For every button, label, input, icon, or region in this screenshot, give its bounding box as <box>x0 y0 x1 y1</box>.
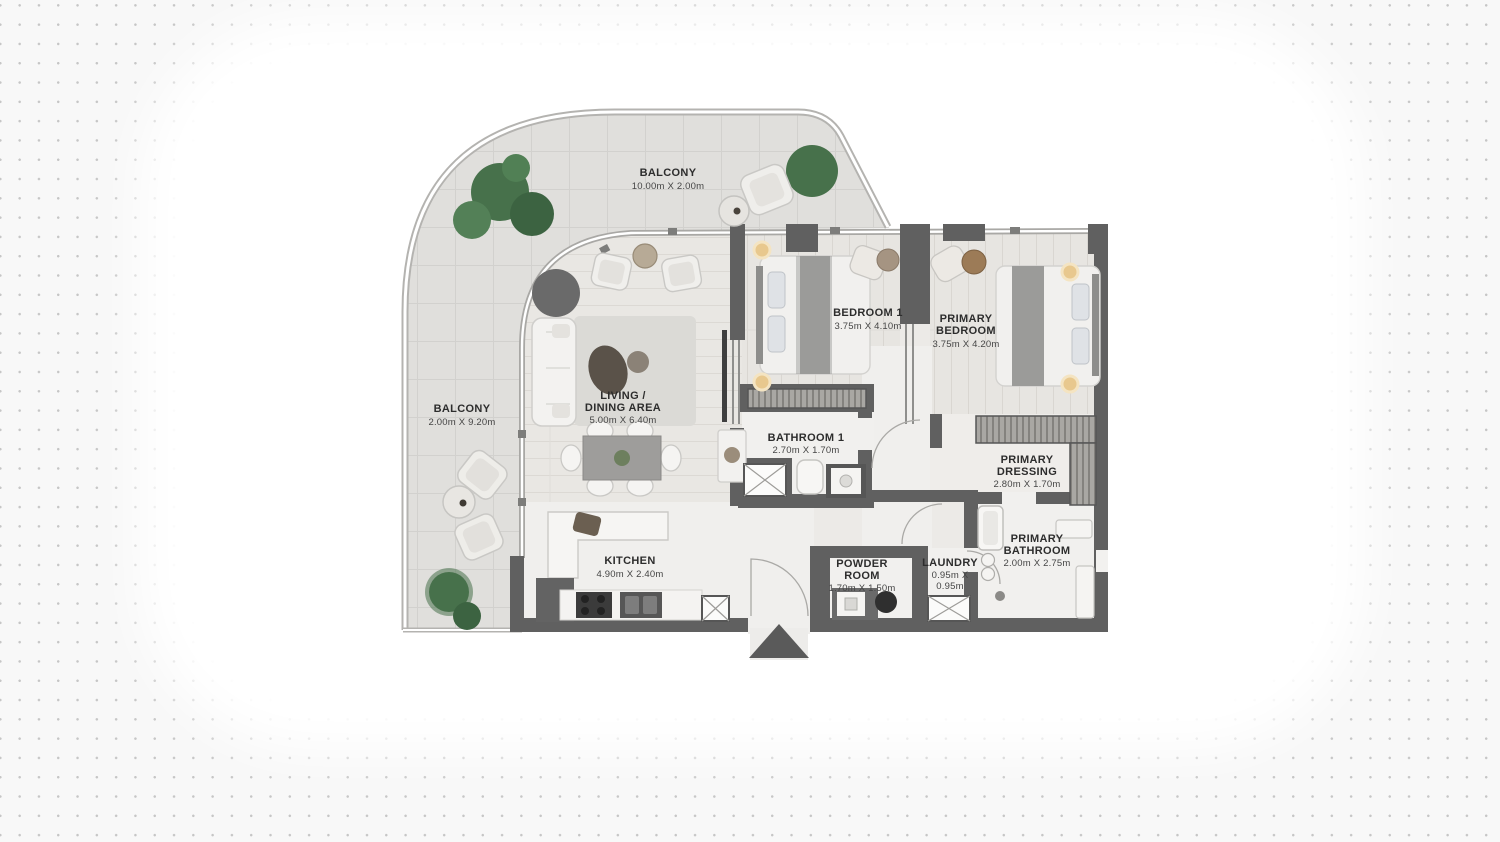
svg-text:4.90m X 2.40m: 4.90m X 2.40m <box>596 569 663 580</box>
svg-text:PRIMARY: PRIMARY <box>1011 533 1064 545</box>
drain <box>995 591 1005 601</box>
kitchen-sink <box>620 592 662 618</box>
table-decor <box>734 208 741 215</box>
tv <box>722 330 727 422</box>
wall-bedroom1-left <box>730 224 745 340</box>
pillow <box>768 316 785 352</box>
svg-text:1.70m X 1.50m: 1.70m X 1.50m <box>828 583 895 594</box>
table-decor <box>460 500 467 507</box>
svg-text:3.75m X 4.10m: 3.75m X 4.10m <box>834 321 901 332</box>
washing-machine <box>928 596 970 621</box>
shower <box>744 464 786 496</box>
svg-text:2.00m X 2.75m: 2.00m X 2.75m <box>1003 558 1070 569</box>
wall-niche <box>1096 550 1108 572</box>
svg-text:5.00m X 6.40m: 5.00m X 6.40m <box>589 415 656 426</box>
svg-text:PRIMARY: PRIMARY <box>940 313 993 325</box>
pillow <box>1072 284 1089 320</box>
label-primary-bedroom: PRIMARY BEDROOM 3.75m X 4.20m <box>932 313 999 350</box>
cooktop <box>576 592 612 618</box>
svg-text:LIVING /: LIVING / <box>600 390 646 402</box>
bathtub-inner <box>983 511 998 545</box>
svg-text:2.80m X 1.70m: 2.80m X 1.70m <box>993 479 1060 490</box>
pillow <box>768 272 785 308</box>
primary-bath-door-gap <box>1002 492 1036 504</box>
vanity <box>826 464 866 498</box>
svg-text:10.00m X 2.00m: 10.00m X 2.00m <box>632 181 705 192</box>
side-table <box>633 244 657 268</box>
label-primary-dressing: PRIMARY DRESSING 2.80m X 1.70m <box>993 454 1060 490</box>
svg-text:POWDER: POWDER <box>836 558 888 570</box>
svg-text:DRESSING: DRESSING <box>997 466 1057 478</box>
round-table-dark <box>532 269 580 317</box>
wall-pier <box>943 224 985 241</box>
toilet <box>797 460 823 494</box>
side-table <box>877 249 899 271</box>
armchair <box>590 252 633 292</box>
plant <box>786 145 838 197</box>
wall-hall-bottom <box>870 490 978 502</box>
wall-kitchen-left <box>510 556 524 632</box>
centerpiece <box>614 450 630 466</box>
svg-text:PRIMARY: PRIMARY <box>1001 454 1054 466</box>
label-primary-bathroom: PRIMARY BATHROOM 2.00m X 2.75m <box>1003 533 1070 569</box>
sink <box>982 568 995 581</box>
svg-text:0.95m: 0.95m <box>936 581 963 592</box>
headboard <box>1092 274 1099 376</box>
side-table <box>962 250 986 274</box>
shaft-box <box>702 596 729 621</box>
lamp <box>1062 264 1078 280</box>
wall-pier <box>786 224 818 252</box>
svg-text:3.75m X 4.20m: 3.75m X 4.20m <box>932 339 999 350</box>
side-table <box>443 486 475 518</box>
svg-text:ROOM: ROOM <box>844 570 880 582</box>
lamp <box>754 242 770 258</box>
shower-bench <box>1076 566 1094 618</box>
svg-text:BATHROOM 1: BATHROOM 1 <box>768 432 845 444</box>
duvet <box>800 256 830 374</box>
svg-text:KITCHEN: KITCHEN <box>604 555 655 567</box>
armchair <box>660 254 702 293</box>
lamp <box>754 374 770 390</box>
sofa <box>532 318 576 426</box>
console-table <box>718 430 746 482</box>
pillow <box>1072 328 1089 364</box>
svg-text:2.70m X 1.70m: 2.70m X 1.70m <box>772 445 839 456</box>
svg-text:LAUNDRY: LAUNDRY <box>922 557 978 569</box>
svg-text:BALCONY: BALCONY <box>640 167 697 179</box>
wall-bedroom-divider <box>900 224 930 324</box>
svg-text:DINING AREA: DINING AREA <box>585 402 661 414</box>
svg-text:BEDROOM: BEDROOM <box>936 325 996 337</box>
duvet <box>1012 266 1044 386</box>
svg-text:0.95m X: 0.95m X <box>932 570 969 581</box>
svg-text:BEDROOM 1: BEDROOM 1 <box>833 307 903 319</box>
headboard <box>756 266 763 364</box>
bathroom1-door-gap <box>858 418 872 450</box>
sink <box>982 554 995 567</box>
svg-text:2.00m X 9.20m: 2.00m X 9.20m <box>428 417 495 428</box>
wall-dressing-stub <box>930 414 942 448</box>
wall-powder-top <box>816 546 918 558</box>
floor-plan: BALCONY 10.00m X 2.00m BALCONY 2.00m X 9… <box>0 0 1500 842</box>
toilet <box>875 591 897 613</box>
bathroom1-fixtures <box>744 460 866 498</box>
lamp <box>1062 376 1078 392</box>
coffee-table-small <box>627 351 649 373</box>
svg-text:BALCONY: BALCONY <box>434 403 491 415</box>
entrance <box>749 624 809 660</box>
svg-text:BATHROOM: BATHROOM <box>1004 545 1071 557</box>
